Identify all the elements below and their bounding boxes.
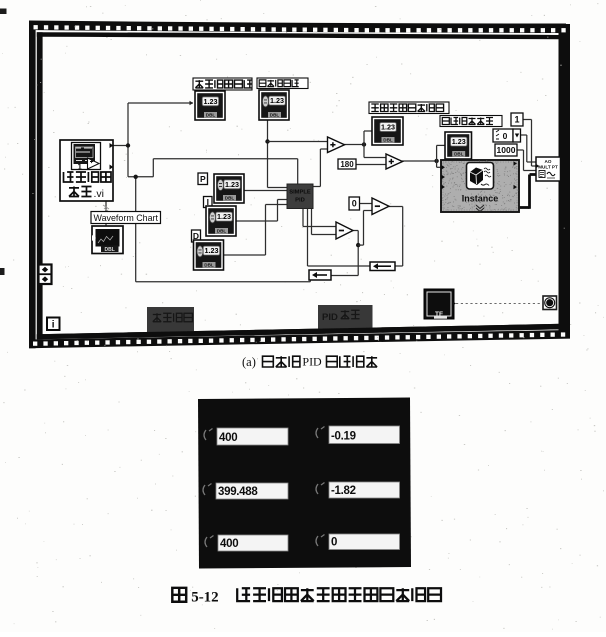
- svg-text:DBL: DBL: [383, 138, 393, 143]
- svg-text:1.23: 1.23: [381, 123, 395, 132]
- svg-text:1.23: 1.23: [225, 180, 239, 189]
- svg-text:DBL: DBL: [225, 196, 235, 201]
- svg-text:400: 400: [219, 432, 237, 444]
- svg-text:PID: PID: [322, 312, 338, 323]
- svg-text:DBL: DBL: [217, 229, 227, 234]
- svg-text:0: 0: [352, 199, 357, 209]
- svg-text:Waveform Chart: Waveform Chart: [94, 213, 159, 223]
- svg-text:DBL: DBL: [270, 113, 280, 118]
- svg-text:180: 180: [340, 160, 354, 169]
- svg-text:DBL: DBL: [204, 263, 214, 268]
- svg-text:DBL: DBL: [105, 247, 115, 253]
- svg-text:1: 1: [78, 163, 83, 172]
- svg-text:-1.82: -1.82: [331, 485, 356, 497]
- svg-text:5-12: 5-12: [191, 590, 219, 606]
- svg-text:1.23: 1.23: [217, 212, 231, 221]
- svg-text:1.23: 1.23: [204, 97, 218, 106]
- svg-text:.vi: .vi: [94, 188, 105, 200]
- svg-text:PID: PID: [302, 355, 322, 369]
- svg-text:0: 0: [331, 537, 337, 549]
- svg-text:1000: 1000: [497, 145, 516, 155]
- svg-text:SIMPLE: SIMPLE: [289, 190, 311, 196]
- svg-text:399.488: 399.488: [218, 486, 258, 498]
- svg-text:1.23: 1.23: [270, 96, 284, 105]
- svg-text:Instance: Instance: [462, 194, 499, 204]
- svg-text:1: 1: [514, 115, 519, 125]
- svg-text:(a): (a): [242, 355, 256, 369]
- svg-text:MULT PT: MULT PT: [538, 165, 558, 170]
- svg-text:i: i: [52, 320, 55, 331]
- svg-text:1.23: 1.23: [452, 137, 466, 146]
- svg-text:400: 400: [220, 538, 238, 550]
- svg-text:P: P: [200, 174, 206, 184]
- svg-text:DBL: DBL: [206, 113, 216, 118]
- svg-text:DBL: DBL: [454, 152, 464, 157]
- svg-text:PID: PID: [295, 198, 305, 204]
- svg-text:0: 0: [503, 131, 508, 141]
- svg-text:1.23: 1.23: [205, 246, 219, 255]
- svg-text:-0.19: -0.19: [331, 431, 356, 443]
- svg-text:AO: AO: [545, 159, 552, 164]
